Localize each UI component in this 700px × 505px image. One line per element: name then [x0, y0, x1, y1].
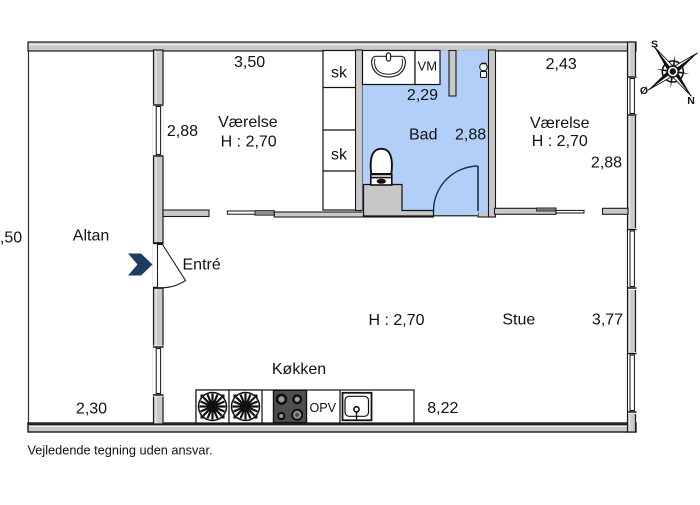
svg-text:S: S — [651, 39, 658, 51]
svg-text:2,29: 2,29 — [407, 87, 438, 104]
svg-text:OPV: OPV — [309, 401, 336, 415]
svg-text:VM: VM — [418, 59, 438, 74]
svg-text:sk: sk — [331, 65, 348, 82]
svg-text:2,88: 2,88 — [167, 123, 198, 140]
svg-text:Altan: Altan — [73, 228, 109, 245]
svg-text:Vejledende tegning uden ansvar: Vejledende tegning uden ansvar. — [28, 443, 213, 458]
svg-text:Bad: Bad — [409, 127, 437, 144]
svg-text:H : 2,70: H : 2,70 — [368, 312, 424, 329]
svg-text:8,22: 8,22 — [427, 400, 458, 417]
svg-text:Værelse: Værelse — [530, 115, 590, 132]
svg-text:Ø: Ø — [640, 85, 648, 97]
svg-text:3,50: 3,50 — [234, 54, 265, 71]
svg-text:2,88: 2,88 — [455, 127, 486, 144]
svg-text:sk: sk — [331, 147, 348, 164]
svg-text:Værelse: Værelse — [218, 114, 278, 131]
svg-text:3,77: 3,77 — [592, 312, 623, 329]
svg-text:2,50: 2,50 — [0, 230, 22, 247]
svg-text:2,30: 2,30 — [76, 401, 107, 418]
svg-text:N: N — [687, 95, 695, 107]
svg-text:2,88: 2,88 — [591, 154, 622, 171]
svg-text:2,43: 2,43 — [546, 56, 577, 73]
svg-text:Stue: Stue — [502, 312, 535, 329]
svg-text:Køkken: Køkken — [272, 361, 326, 378]
svg-text:Entré: Entré — [183, 256, 221, 273]
svg-text:H : 2,70: H : 2,70 — [532, 133, 588, 150]
svg-text:H : 2,70: H : 2,70 — [221, 134, 277, 151]
